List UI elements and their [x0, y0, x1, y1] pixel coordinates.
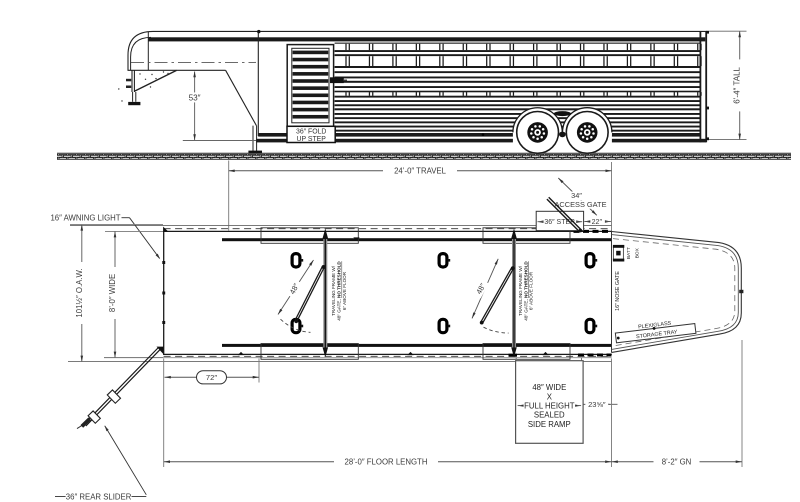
svg-text:22″: 22″ [592, 219, 603, 226]
svg-text:BATT: BATT [626, 247, 632, 259]
svg-text:23⅝″: 23⅝″ [588, 400, 606, 409]
svg-text:48″ GATE, NO THRESHOLD: 48″ GATE, NO THRESHOLD [337, 261, 342, 321]
svg-text:16″ AWNING LIGHT: 16″ AWNING LIGHT [50, 213, 120, 222]
svg-text:8’-0″ WIDE: 8’-0″ WIDE [108, 274, 117, 312]
svg-text:6’-4″ TALL: 6’-4″ TALL [733, 66, 742, 103]
svg-text:TRAVELING FRAME W/: TRAVELING FRAME W/ [331, 265, 336, 316]
svg-text:36″ FOLD: 36″ FOLD [296, 128, 326, 135]
svg-text:101½″ O.A.W.: 101½″ O.A.W. [75, 268, 84, 317]
svg-text:36″ REAR SLIDER: 36″ REAR SLIDER [66, 492, 132, 501]
svg-text:8’-2″ GN: 8’-2″ GN [662, 458, 692, 467]
svg-text:24’-0″ TRAVEL: 24’-0″ TRAVEL [394, 167, 447, 176]
svg-text:X: X [547, 392, 553, 401]
svg-text:16″ NOSE GATE: 16″ NOSE GATE [615, 271, 621, 311]
svg-text:34″: 34″ [571, 191, 582, 200]
svg-text:28’-0″ FLOOR LENGTH: 28’-0″ FLOOR LENGTH [345, 458, 428, 467]
svg-text:SIDE RAMP: SIDE RAMP [528, 420, 571, 429]
svg-text:UP STEP: UP STEP [297, 136, 327, 143]
svg-text:FULL HEIGHT: FULL HEIGHT [524, 401, 575, 410]
svg-text:53″: 53″ [189, 93, 201, 102]
svg-text:6″ ABOVE FLOOR: 6″ ABOVE FLOOR [529, 271, 534, 310]
svg-text:BOX: BOX [635, 247, 641, 258]
svg-text:48″ GATE, NO THRESHOLD: 48″ GATE, NO THRESHOLD [523, 261, 528, 321]
svg-text:TRAVELING FRAME W/: TRAVELING FRAME W/ [518, 265, 523, 316]
svg-text:SEALED: SEALED [534, 411, 565, 420]
svg-text:ACCESS GATE: ACCESS GATE [554, 200, 606, 209]
svg-text:6″ ABOVE FLOOR: 6″ ABOVE FLOOR [342, 271, 347, 310]
svg-text:72″: 72″ [206, 373, 217, 382]
svg-text:48″ WIDE: 48″ WIDE [532, 383, 566, 392]
